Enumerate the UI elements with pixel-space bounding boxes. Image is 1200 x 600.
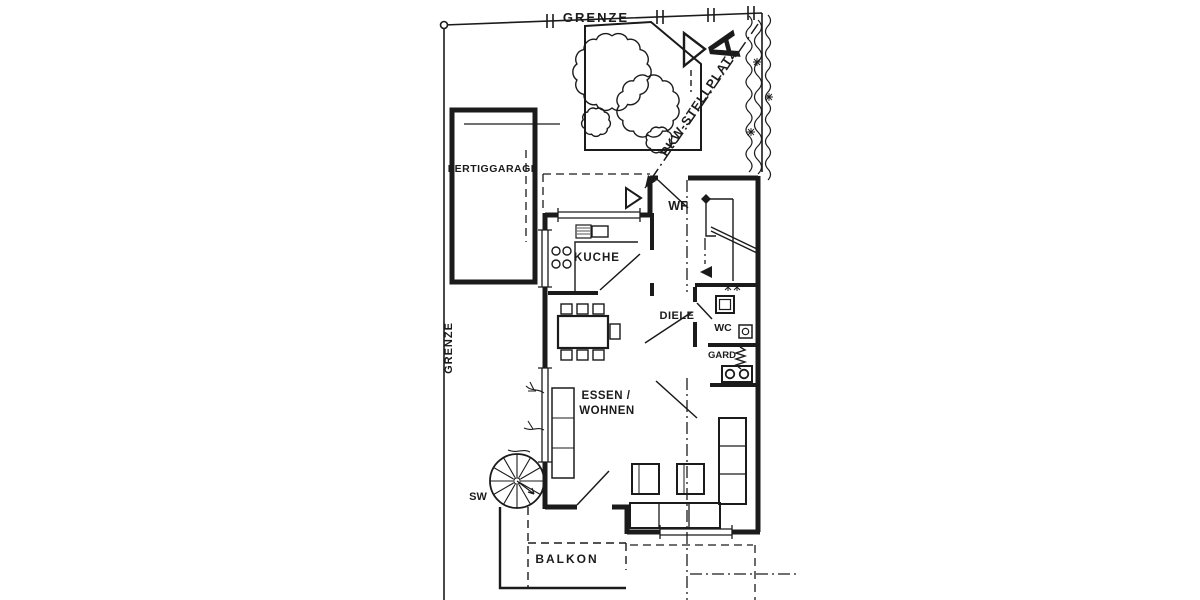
label-diele: DIELE: [660, 310, 695, 322]
sofa-right-cushions: [719, 446, 746, 474]
label-sw: SW: [469, 491, 487, 503]
survey-point-icon: [441, 22, 448, 29]
floor-plan-page: GRENZE GRENZE PKW-STELLPLATZ A FERTIGGAR…: [0, 0, 1200, 600]
dining-table: [558, 316, 608, 348]
garage: [452, 110, 650, 282]
stove-burners-icon: [552, 247, 571, 268]
counter-edge: [575, 242, 638, 293]
label-grenze-top: GRENZE: [563, 10, 629, 25]
toilet-inner: [720, 300, 731, 310]
cabinet-knob-right: [740, 370, 749, 379]
doors: [577, 180, 712, 505]
stair-handrail: [711, 227, 757, 253]
label-fertiggarage: FERTIGGARAGE: [448, 163, 539, 175]
site-boundary: [441, 6, 763, 600]
label-balkon: BALKON: [535, 552, 598, 566]
drainer-hatch: [577, 228, 590, 234]
sideboard-shelves: [552, 418, 574, 448]
branch-lines: [508, 382, 544, 452]
dining-set: [558, 304, 620, 360]
terrace-dashed-lines: [630, 545, 755, 600]
balcony-dashed-lines: [528, 507, 626, 588]
cabinet-knob-left: [726, 370, 735, 379]
entrance-pointer-icon: [626, 188, 641, 208]
floor-plan-drawing: GRENZE GRENZE PKW-STELLPLATZ A FERTIGGAR…: [0, 0, 1200, 600]
section-lines: [630, 180, 800, 600]
boundary-lines: [444, 13, 762, 600]
sofa-right: [719, 418, 746, 504]
spiral-staircase-icon: [490, 454, 544, 508]
sideboard: [552, 388, 574, 478]
dining-chairs: [561, 304, 620, 360]
staircase: [700, 194, 757, 281]
washbasin-icon: [739, 325, 752, 338]
sofa-bottom-cushions: [659, 503, 689, 528]
toilet-icon: [716, 296, 734, 313]
label-gard: GARD: [708, 350, 736, 361]
shrub-branches: [508, 382, 544, 452]
label-pkw-stellplatz: PKW-STELLPLATZ: [658, 47, 740, 159]
sofa-bottom: [630, 503, 720, 528]
stair-start-diamond-icon: [701, 194, 711, 204]
tree-icon: [573, 34, 679, 153]
stair-direction-arrow-icon: [700, 266, 712, 278]
balcony: [500, 507, 626, 588]
label-grenze-left: GRENZE: [443, 322, 455, 374]
side-table-left: [632, 464, 659, 494]
label-marker-a: A: [696, 26, 749, 67]
drainer-icon: [576, 225, 591, 238]
label-wohnen: WOHNEN: [579, 405, 634, 417]
door-leaf-lines: [577, 180, 712, 505]
washbasin-drain: [742, 328, 748, 334]
sink-icon: [592, 226, 608, 237]
label-essen: ESSEN /: [582, 390, 631, 402]
label-wf: WF: [668, 199, 688, 213]
label-kueche: KUCHE: [574, 252, 620, 264]
hedge: [746, 15, 773, 180]
label-wc: WC: [714, 322, 732, 334]
side-table-right: [677, 464, 704, 494]
balcony-outline: [500, 507, 626, 588]
garage-walls: [452, 110, 535, 282]
